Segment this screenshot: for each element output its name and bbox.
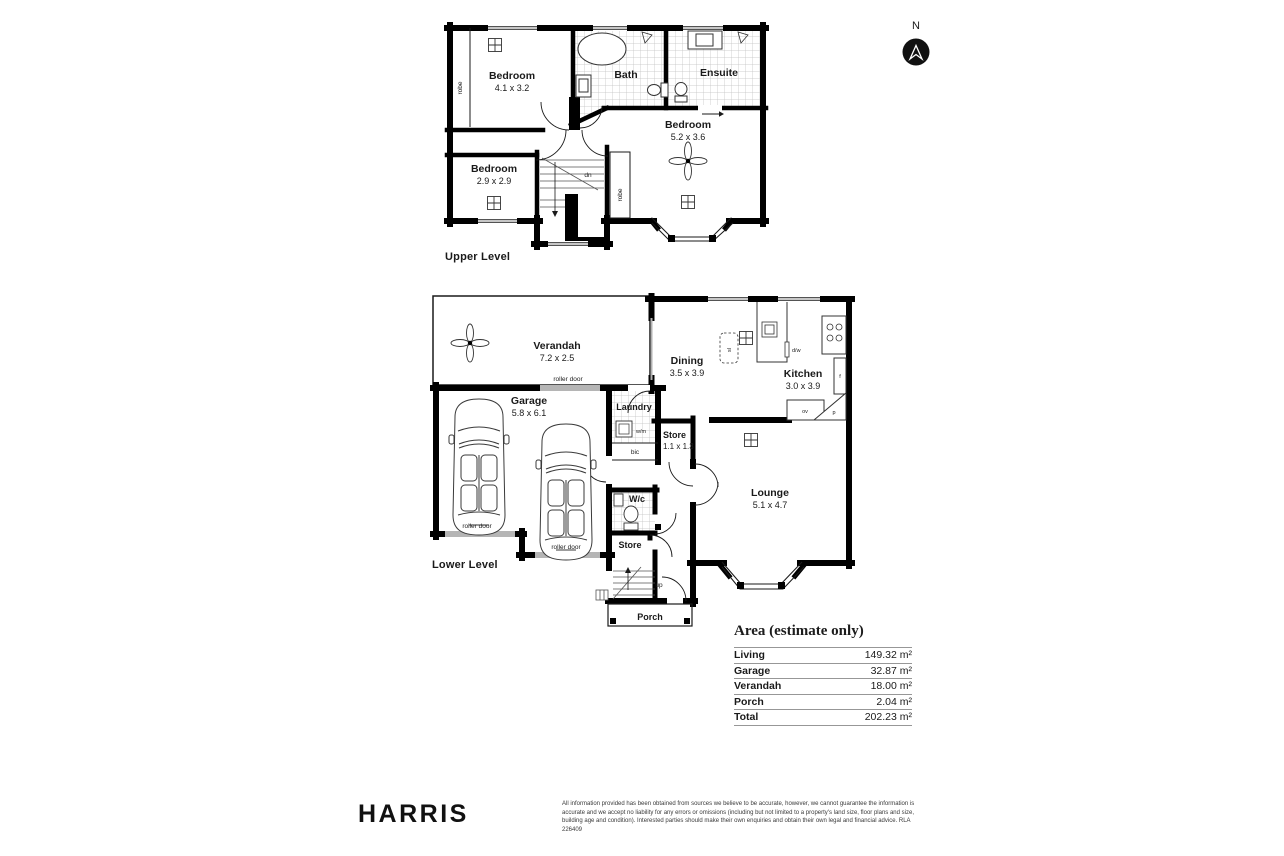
island-sl bbox=[720, 333, 738, 363]
harris-logo: HARRIS bbox=[358, 800, 469, 829]
table-row: Porch 2.04 m² bbox=[734, 694, 912, 710]
area-row-label: Garage bbox=[734, 666, 770, 677]
pantry-label: p bbox=[832, 410, 835, 416]
lower-floor-plan: Verandah 7.2 x 2.5 Garage 5.8 x 6.1 roll… bbox=[425, 290, 865, 640]
bedroom1-dims: 4.1 x 3.2 bbox=[495, 83, 530, 93]
bedroom3-label: Bedroom bbox=[665, 119, 711, 131]
wall-post bbox=[655, 524, 661, 530]
area-row-label: Total bbox=[734, 712, 758, 723]
table-row-total: Total 202.23 m² bbox=[734, 709, 912, 726]
kitchen-sink bbox=[765, 325, 774, 334]
bedroom2-label: Bedroom bbox=[471, 163, 517, 175]
table-row: Living 149.32 m² bbox=[734, 647, 912, 663]
ceiling-fan-icon bbox=[451, 324, 489, 362]
verandah-label: Verandah bbox=[533, 340, 580, 352]
hall-wall-stub bbox=[569, 97, 580, 130]
bedroom2-dims: 2.9 x 2.9 bbox=[477, 176, 512, 186]
porch-post bbox=[610, 618, 616, 624]
area-row-label: Living bbox=[734, 650, 765, 661]
dining-label: Dining bbox=[671, 355, 704, 367]
lounge-label: Lounge bbox=[751, 487, 789, 499]
area-row-value: 202.23 m² bbox=[865, 712, 912, 723]
roller-door-label: roller door bbox=[551, 544, 581, 551]
wm-label: w/m bbox=[635, 429, 647, 435]
window-icon bbox=[740, 332, 753, 345]
upper-floor-plan: Bedroom 4.1 x 3.2 Bath Ensuite Bedroom 5… bbox=[430, 15, 775, 265]
disclaimer-text: All information provided has been obtain… bbox=[562, 800, 928, 835]
wc-label: W/c bbox=[629, 494, 645, 504]
window-icon bbox=[745, 434, 758, 447]
lower-level-caption: Lower Level bbox=[432, 559, 498, 571]
area-row-value: 2.04 m² bbox=[876, 697, 912, 708]
upper-bay-window bbox=[652, 218, 733, 241]
cooktop bbox=[822, 316, 846, 354]
kitchen-label: Kitchen bbox=[784, 368, 823, 380]
floorplan-page: N bbox=[0, 0, 1284, 856]
garage-label: Garage bbox=[511, 395, 547, 407]
robe-label: robe bbox=[457, 81, 464, 94]
north-arrow-icon bbox=[903, 39, 930, 66]
garage-dims: 5.8 x 6.1 bbox=[512, 408, 547, 418]
table-row: Garage 32.87 m² bbox=[734, 663, 912, 679]
upper-level-caption: Upper Level bbox=[445, 251, 510, 263]
dining-dims: 3.5 x 3.9 bbox=[670, 368, 705, 378]
wc-basin bbox=[614, 494, 623, 506]
north-label: N bbox=[912, 20, 920, 32]
laundry-label: Laundry bbox=[616, 402, 652, 412]
store1-dims: 1.1 x 1.3 bbox=[663, 442, 694, 451]
ensuite-label: Ensuite bbox=[700, 67, 738, 79]
bedroom1-label: Bedroom bbox=[489, 70, 535, 82]
bic-label: bic bbox=[631, 449, 640, 456]
car-1 bbox=[449, 399, 509, 535]
store2-label: Store bbox=[618, 540, 641, 550]
window-icon bbox=[489, 39, 502, 52]
bedroom3-dims: 5.2 x 3.6 bbox=[671, 132, 706, 142]
table-row: Verandah 18.00 m² bbox=[734, 678, 912, 694]
bath-toilet bbox=[648, 85, 661, 96]
kitchen-fixtures bbox=[720, 302, 846, 420]
dishwasher bbox=[785, 342, 789, 357]
area-table: Area (estimate only) Living 149.32 m² Ga… bbox=[734, 623, 912, 726]
stairs-dn-label: dn bbox=[584, 172, 592, 179]
bathtub bbox=[578, 33, 626, 65]
window-icon bbox=[488, 197, 501, 210]
oven-label: ov bbox=[802, 409, 808, 415]
stairs-up-label: up bbox=[655, 582, 663, 589]
bath-label: Bath bbox=[614, 69, 637, 81]
sl-label: sl bbox=[727, 348, 733, 352]
roller-door-label: roller door bbox=[462, 523, 492, 530]
area-row-value: 149.32 m² bbox=[865, 650, 912, 661]
area-row-value: 18.00 m² bbox=[871, 681, 912, 692]
side-steps bbox=[596, 590, 608, 600]
verandah-dims: 7.2 x 2.5 bbox=[540, 353, 575, 363]
roller-door-label: roller door bbox=[553, 376, 583, 383]
north-indicator: N bbox=[896, 15, 936, 71]
lounge-bay-window bbox=[722, 562, 804, 589]
stair-wall bbox=[565, 194, 578, 244]
wc-toilet bbox=[624, 506, 638, 522]
lower-stairs bbox=[613, 567, 655, 599]
porch-post bbox=[684, 618, 690, 624]
kitchen-dims: 3.0 x 3.9 bbox=[786, 381, 821, 391]
dw-label: d/w bbox=[792, 348, 801, 354]
area-row-label: Verandah bbox=[734, 681, 781, 692]
car-2 bbox=[536, 424, 596, 560]
window-icon bbox=[682, 196, 695, 209]
area-row-value: 32.87 m² bbox=[871, 666, 912, 677]
ensuite-toilet bbox=[675, 83, 687, 96]
lounge-dims: 5.1 x 4.7 bbox=[753, 500, 788, 510]
robe-label: robe bbox=[617, 188, 624, 201]
area-row-label: Porch bbox=[734, 697, 764, 708]
store1-label: Store bbox=[663, 430, 686, 440]
porch-label: Porch bbox=[637, 612, 663, 622]
ceiling-fan-icon bbox=[669, 142, 707, 180]
area-table-title: Area (estimate only) bbox=[734, 623, 912, 640]
